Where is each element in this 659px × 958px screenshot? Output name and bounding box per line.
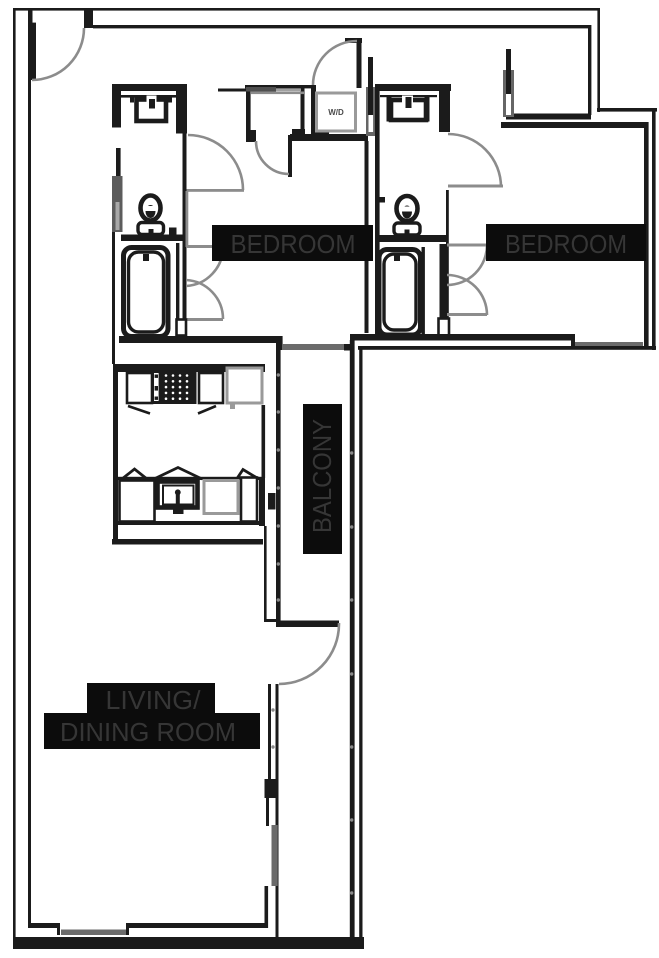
svg-text:LIVING/: LIVING/ bbox=[106, 685, 202, 715]
svg-text:BALCONY: BALCONY bbox=[307, 419, 337, 533]
svg-text:BEDROOM: BEDROOM bbox=[231, 229, 356, 259]
svg-text:BEDROOM: BEDROOM bbox=[505, 229, 627, 259]
svg-text:DINING ROOM: DINING ROOM bbox=[60, 717, 236, 747]
svg-text:W/D: W/D bbox=[328, 108, 344, 117]
